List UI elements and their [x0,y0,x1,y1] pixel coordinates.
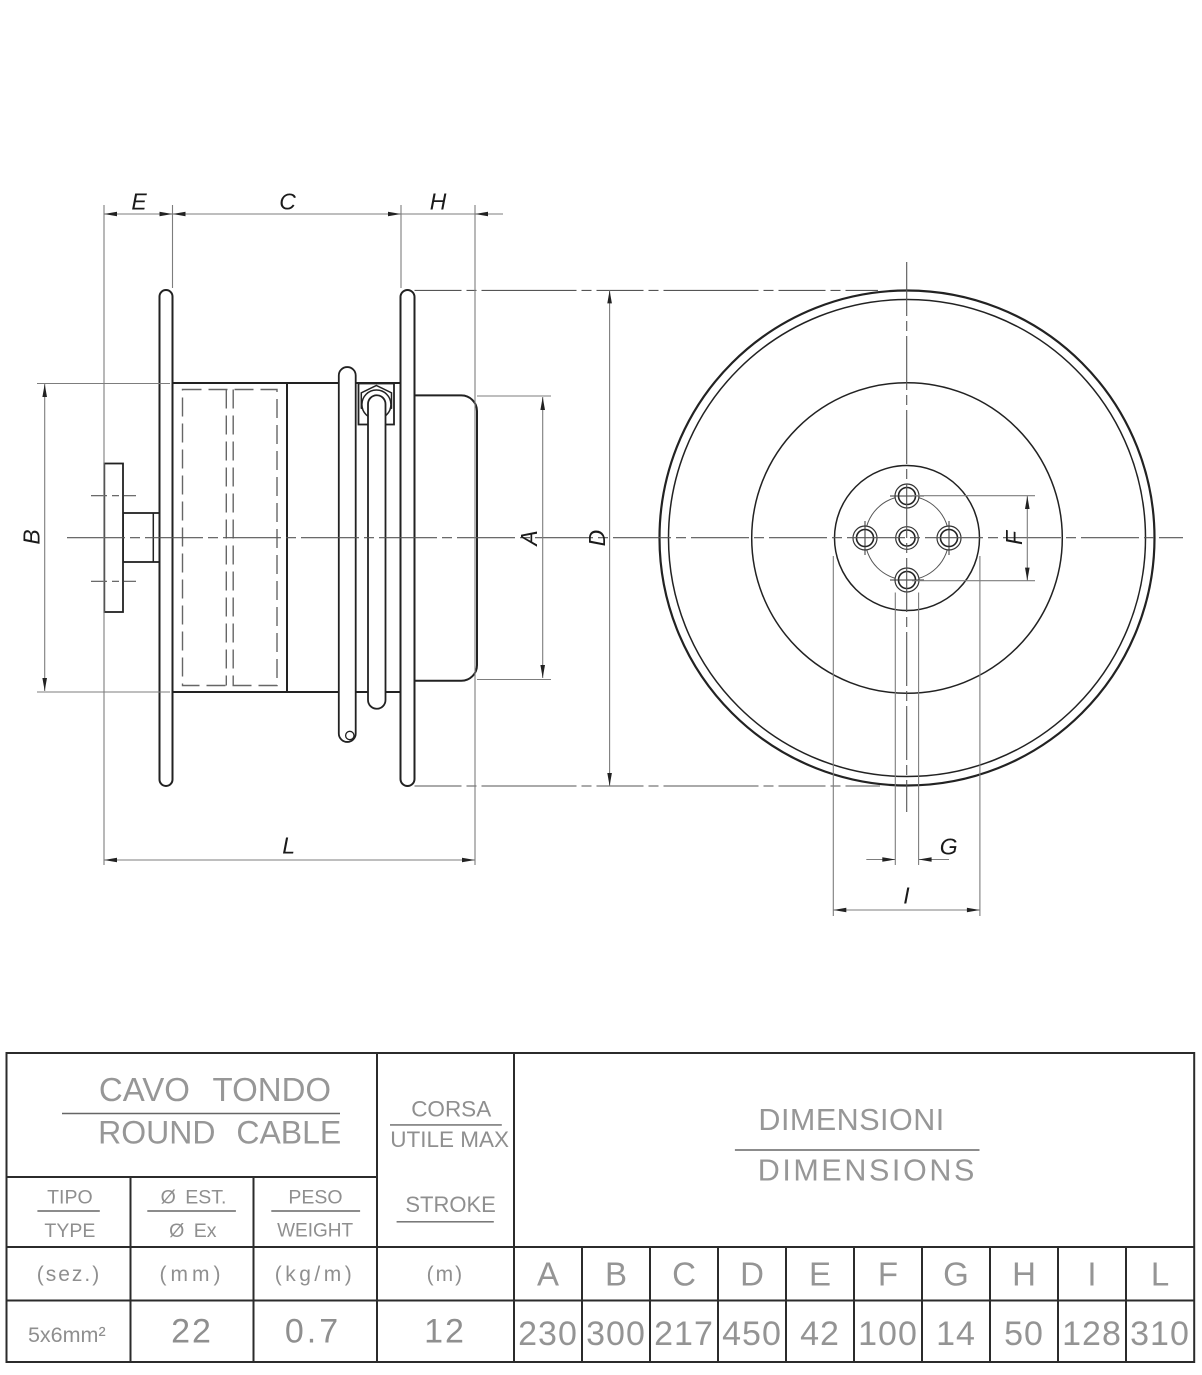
svg-text:100: 100 [858,1315,918,1353]
svg-text:D: D [584,530,610,547]
svg-text:L: L [1151,1256,1169,1293]
svg-text:300: 300 [586,1315,646,1353]
svg-text:STROKE: STROKE [405,1192,495,1217]
svg-text:H: H [430,189,447,215]
svg-text:B: B [19,529,45,544]
svg-text:A: A [537,1256,559,1293]
svg-text:E: E [131,189,147,215]
svg-text:B: B [605,1256,627,1293]
svg-text:A: A [516,530,542,547]
svg-text:F: F [878,1256,898,1293]
svg-text:5x6mm²: 5x6mm² [28,1323,106,1347]
svg-text:G: G [940,834,958,860]
svg-text:H: H [1012,1256,1036,1293]
svg-text:0.7: 0.7 [285,1313,341,1351]
svg-text:310: 310 [1130,1315,1190,1353]
svg-text:TYPE: TYPE [44,1220,95,1242]
svg-text:F: F [1001,529,1027,545]
svg-text:L: L [282,833,295,859]
svg-text:G: G [943,1256,969,1293]
svg-text:(sez.): (sez.) [37,1263,102,1286]
svg-text:Ø Ex: Ø Ex [169,1220,217,1242]
svg-text:12: 12 [424,1313,466,1351]
svg-text:(m): (m) [427,1263,464,1286]
svg-text:128: 128 [1062,1315,1122,1353]
svg-text:217: 217 [654,1315,714,1353]
svg-text:CAVO TONDO: CAVO TONDO [99,1071,331,1108]
svg-text:50: 50 [1004,1315,1044,1353]
svg-text:22: 22 [171,1313,213,1351]
svg-text:E: E [809,1256,831,1293]
svg-text:UTILE MAX: UTILE MAX [390,1127,509,1152]
svg-text:I: I [903,883,910,909]
svg-text:230: 230 [518,1315,578,1353]
svg-text:I: I [1087,1256,1096,1293]
svg-text:PESO: PESO [288,1187,342,1209]
svg-text:CORSA: CORSA [411,1097,491,1122]
svg-text:DIMENSIONS: DIMENSIONS [758,1154,977,1188]
svg-text:D: D [740,1256,764,1293]
svg-text:14: 14 [936,1315,976,1353]
svg-text:42: 42 [800,1315,840,1353]
svg-text:450: 450 [722,1315,782,1353]
svg-text:DIMENSIONI: DIMENSIONI [758,1103,944,1137]
svg-text:ROUND CABLE: ROUND CABLE [98,1115,341,1151]
svg-text:C: C [279,189,296,215]
svg-text:(kg/m): (kg/m) [275,1263,356,1286]
svg-text:Ø EST.: Ø EST. [161,1187,227,1209]
svg-text:TIPO: TIPO [47,1187,93,1209]
svg-text:C: C [672,1256,696,1293]
svg-text:WEIGHT: WEIGHT [277,1221,353,1242]
svg-text:(mm): (mm) [160,1263,225,1286]
